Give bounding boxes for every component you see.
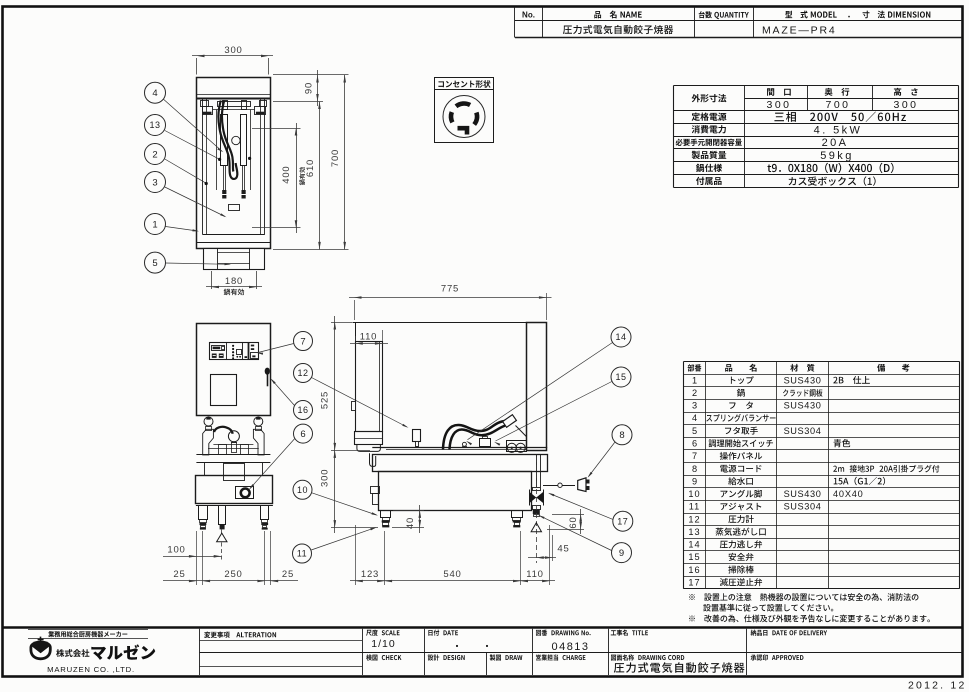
svg-text:700: 700 bbox=[330, 149, 341, 167]
svg-text:1: 1 bbox=[692, 375, 697, 385]
svg-text:17: 17 bbox=[688, 577, 700, 587]
svg-text:9: 9 bbox=[619, 548, 624, 559]
svg-text:2: 2 bbox=[152, 149, 157, 160]
svg-text:4: 4 bbox=[152, 88, 157, 99]
svg-text:6: 6 bbox=[692, 438, 697, 448]
svg-text:25: 25 bbox=[173, 569, 185, 580]
svg-text:40X40: 40X40 bbox=[833, 489, 864, 499]
svg-text:4: 4 bbox=[692, 413, 697, 423]
svg-text:9: 9 bbox=[692, 476, 697, 486]
svg-text:No.: No. bbox=[522, 11, 535, 20]
svg-text:SUS430: SUS430 bbox=[784, 489, 822, 499]
svg-text:13: 13 bbox=[149, 120, 160, 130]
svg-text:5: 5 bbox=[152, 258, 157, 269]
svg-text:15: 15 bbox=[615, 372, 626, 382]
svg-text:3: 3 bbox=[152, 177, 157, 188]
svg-text:SUS304: SUS304 bbox=[784, 502, 822, 512]
svg-text:300: 300 bbox=[224, 45, 242, 56]
svg-text:700: 700 bbox=[825, 99, 850, 111]
svg-text:4. 5kW: 4. 5kW bbox=[814, 124, 863, 136]
svg-text:16: 16 bbox=[297, 405, 308, 415]
svg-text:2: 2 bbox=[692, 388, 697, 398]
svg-text:11: 11 bbox=[689, 502, 701, 512]
svg-text:SUS430: SUS430 bbox=[784, 375, 822, 385]
svg-text:25: 25 bbox=[282, 569, 294, 580]
svg-text:12: 12 bbox=[297, 368, 308, 378]
svg-text:14: 14 bbox=[688, 540, 700, 550]
svg-text:SUS304: SUS304 bbox=[784, 426, 822, 436]
svg-text:8: 8 bbox=[619, 430, 624, 441]
svg-text:90: 90 bbox=[304, 82, 315, 94]
svg-text:7: 7 bbox=[300, 336, 305, 347]
svg-text:123: 123 bbox=[361, 569, 379, 580]
svg-text:17: 17 bbox=[617, 516, 628, 526]
svg-text:1/10: 1/10 bbox=[371, 638, 395, 650]
svg-text:300: 300 bbox=[893, 99, 918, 111]
svg-text:525: 525 bbox=[320, 391, 331, 409]
svg-text:60: 60 bbox=[568, 516, 579, 528]
svg-text:45: 45 bbox=[557, 544, 569, 555]
svg-text:250: 250 bbox=[224, 569, 242, 580]
svg-text:180: 180 bbox=[225, 276, 243, 287]
svg-text:15: 15 bbox=[688, 552, 700, 562]
svg-text:100: 100 bbox=[167, 545, 185, 556]
svg-text:16: 16 bbox=[688, 565, 700, 575]
svg-text:13: 13 bbox=[688, 527, 700, 537]
svg-text:6: 6 bbox=[300, 429, 305, 440]
svg-text:775: 775 bbox=[441, 284, 459, 295]
svg-text:59kg: 59kg bbox=[820, 150, 853, 162]
svg-text:10: 10 bbox=[688, 489, 700, 499]
svg-text:610: 610 bbox=[305, 159, 316, 177]
svg-text:40: 40 bbox=[405, 517, 416, 529]
svg-text:7: 7 bbox=[692, 451, 697, 461]
svg-text:12: 12 bbox=[688, 514, 700, 524]
svg-text:3: 3 bbox=[692, 401, 697, 411]
svg-text:10: 10 bbox=[297, 485, 308, 495]
svg-text:1: 1 bbox=[152, 219, 157, 230]
svg-text:300: 300 bbox=[766, 99, 791, 111]
svg-text:14: 14 bbox=[615, 332, 626, 342]
svg-text:20A: 20A bbox=[822, 137, 849, 149]
svg-text:2012. 12: 2012. 12 bbox=[908, 680, 966, 692]
svg-text:400: 400 bbox=[281, 165, 292, 183]
svg-text:110: 110 bbox=[360, 332, 378, 343]
svg-text:110: 110 bbox=[526, 569, 544, 580]
svg-text:11: 11 bbox=[297, 549, 307, 559]
svg-text:300: 300 bbox=[320, 469, 331, 487]
svg-text:5: 5 bbox=[692, 426, 697, 436]
svg-text:SUS430: SUS430 bbox=[784, 401, 822, 411]
svg-text:MARUZEN CO. ,LTD.: MARUZEN CO. ,LTD. bbox=[47, 665, 135, 674]
svg-text:MAZE—PR4: MAZE—PR4 bbox=[762, 25, 837, 37]
svg-text:8: 8 bbox=[692, 464, 697, 474]
svg-text:540: 540 bbox=[443, 569, 461, 580]
svg-text:04813: 04813 bbox=[551, 641, 589, 653]
